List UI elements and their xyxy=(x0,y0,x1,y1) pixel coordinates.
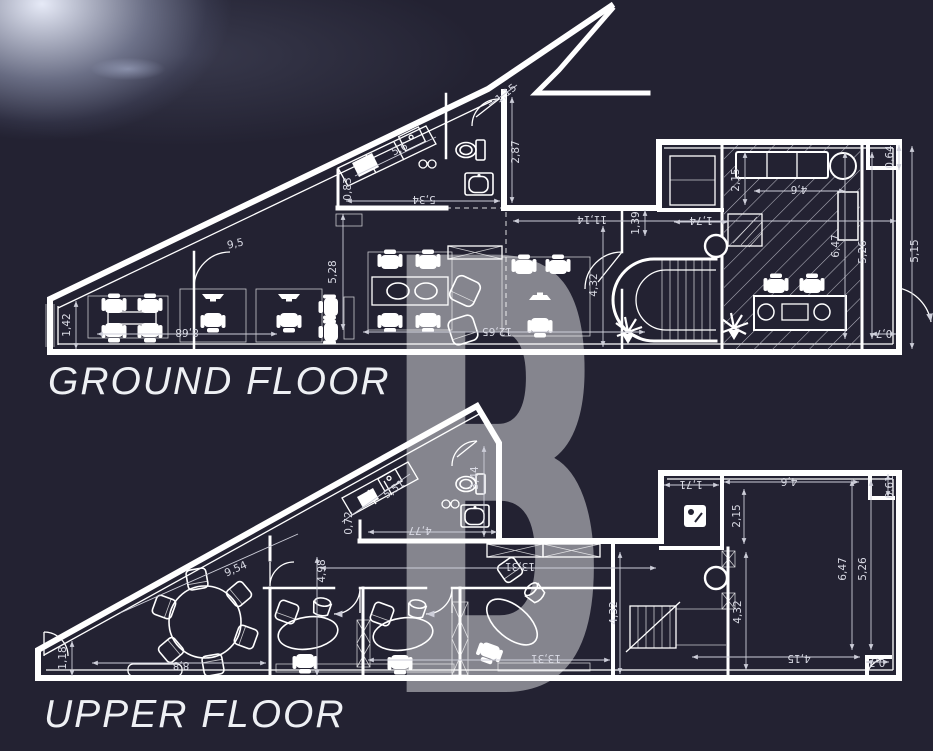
dim-label: 0,7 xyxy=(869,656,886,668)
dim-label: 1,71 xyxy=(679,478,702,490)
dim-label: 0,64 xyxy=(884,145,896,169)
dim-label: 5,15 xyxy=(909,239,921,262)
dim-label: 1,18 xyxy=(57,646,69,669)
office-chair xyxy=(102,294,127,314)
closet xyxy=(670,156,715,205)
ground-floor-title: GROUND FLOOR xyxy=(48,360,391,404)
dim-label: 0,7 xyxy=(876,327,893,339)
guest-chair xyxy=(311,597,332,618)
door-arc xyxy=(270,562,294,586)
dim-label: 12,65 xyxy=(482,325,512,337)
dim-label: 5,26 xyxy=(857,557,869,581)
dim-label: 1,42 xyxy=(61,313,73,336)
door-arc xyxy=(472,99,499,126)
dim-label: 5,26 xyxy=(857,240,869,264)
guest-chair xyxy=(274,599,300,625)
dim-label: 4,32 xyxy=(588,273,600,296)
sideboard xyxy=(838,192,858,240)
office-chair xyxy=(319,320,339,345)
exit-door-arc xyxy=(899,288,931,330)
dim-label: 4,32 xyxy=(608,601,620,624)
dim-label: 8,8 xyxy=(173,659,190,671)
dim-label: 9,54 xyxy=(223,559,250,580)
dim-label: 2,15 xyxy=(730,168,742,191)
dim-label: 5,34 xyxy=(412,193,436,205)
ground-right-block xyxy=(659,142,931,352)
dim-label: 11,14 xyxy=(577,213,607,225)
office-a xyxy=(274,597,340,674)
dim-label: 4,6 xyxy=(780,475,797,487)
dim-label: 4,77 xyxy=(408,524,431,536)
dim-label: 0,72 xyxy=(343,511,355,534)
round-table xyxy=(830,153,856,179)
corner-station xyxy=(319,295,355,345)
office-chair xyxy=(277,313,302,333)
dim-label: 9,5 xyxy=(226,236,245,251)
upper-stairs xyxy=(626,602,726,652)
dim-label: 4,32 xyxy=(732,600,744,623)
dim-label: 0,83 xyxy=(342,177,354,200)
radiator xyxy=(336,214,362,226)
workstation-cluster xyxy=(88,294,168,343)
dim-label: 3,44 xyxy=(469,466,481,490)
dim-label: 13,31 xyxy=(531,652,561,664)
office-chair xyxy=(102,323,127,343)
blueprint-canvas: B xyxy=(0,0,933,751)
column xyxy=(705,235,727,257)
office-chair xyxy=(138,323,163,343)
meeting-table xyxy=(151,567,259,676)
upper-right-block xyxy=(626,473,893,680)
office-chair xyxy=(201,313,226,333)
dim-label: 2,15 xyxy=(731,504,743,527)
dim-label: 4,98 xyxy=(316,559,328,582)
dim-label: 1,39 xyxy=(630,211,642,234)
office-chair xyxy=(319,295,339,320)
dim-label: 0,61 xyxy=(884,475,896,498)
equipment-icon xyxy=(684,505,706,527)
dim-label: 13,31 xyxy=(505,560,535,572)
office-chair xyxy=(138,294,163,314)
dim-label: 8,68 xyxy=(175,326,198,338)
upper-floor-title: UPPER FLOOR xyxy=(44,693,346,737)
dim-label: 6,47 xyxy=(837,557,849,580)
desk xyxy=(276,613,340,653)
dim-label: 4,15 xyxy=(787,652,810,664)
column xyxy=(705,567,727,589)
dim-label: 5,28 xyxy=(327,260,339,283)
dim-label: 4,6 xyxy=(790,183,807,195)
dim-label: 2,87 xyxy=(510,140,522,163)
door-arc xyxy=(334,588,360,614)
dim-label: 1,74 xyxy=(689,214,713,226)
dim-label: 6,47 xyxy=(830,234,842,257)
sofa xyxy=(736,152,828,178)
